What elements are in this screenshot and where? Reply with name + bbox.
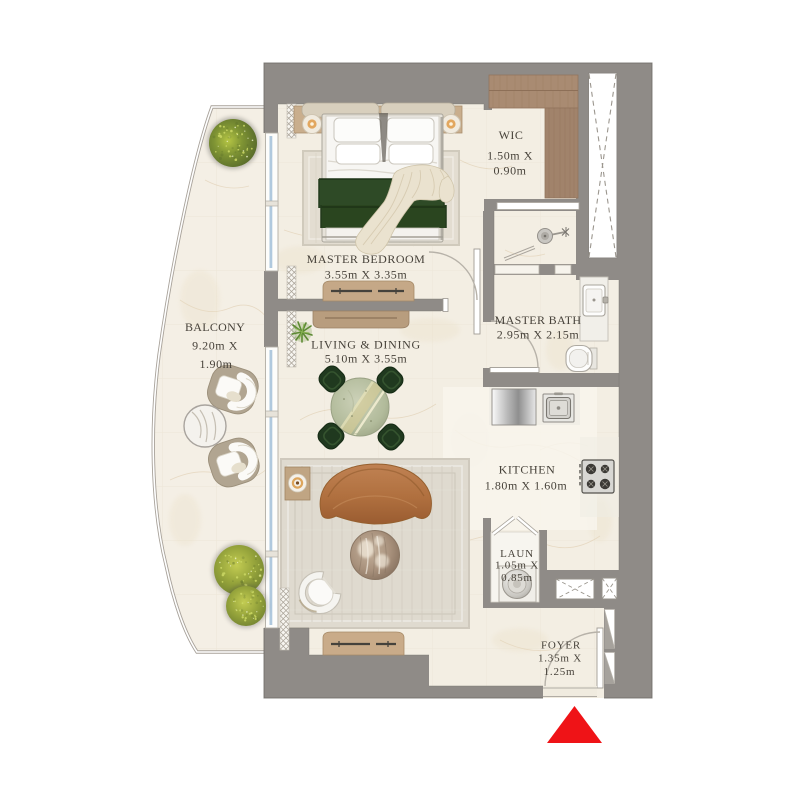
svg-text:1.35m X: 1.35m X bbox=[538, 653, 582, 665]
svg-text:1.05m X: 1.05m X bbox=[495, 560, 539, 572]
svg-text:1.50m X: 1.50m X bbox=[487, 149, 533, 163]
svg-text:LIVING & DINING: LIVING & DINING bbox=[311, 338, 421, 352]
svg-text:BALCONY: BALCONY bbox=[185, 320, 245, 334]
svg-text:MASTER BEDROOM: MASTER BEDROOM bbox=[307, 252, 426, 266]
svg-text:KITCHEN: KITCHEN bbox=[499, 463, 556, 477]
svg-text:0.85m: 0.85m bbox=[501, 572, 533, 584]
svg-text:9.20m X: 9.20m X bbox=[192, 339, 238, 353]
svg-text:FOYER: FOYER bbox=[541, 640, 581, 652]
svg-text:LAUN: LAUN bbox=[500, 548, 534, 560]
svg-text:1.90m: 1.90m bbox=[199, 357, 232, 371]
svg-text:1.80m X 1.60m: 1.80m X 1.60m bbox=[485, 479, 568, 493]
svg-text:2.95m X 2.15m: 2.95m X 2.15m bbox=[497, 328, 580, 342]
svg-text:0.90m: 0.90m bbox=[493, 164, 526, 178]
svg-text:5.10m X 3.55m: 5.10m X 3.55m bbox=[325, 352, 408, 366]
svg-text:WIC: WIC bbox=[499, 128, 524, 142]
svg-text:3.55m X 3.35m: 3.55m X 3.35m bbox=[325, 268, 408, 282]
svg-text:1.25m: 1.25m bbox=[544, 666, 576, 678]
svg-text:MASTER BATH: MASTER BATH bbox=[495, 313, 582, 327]
